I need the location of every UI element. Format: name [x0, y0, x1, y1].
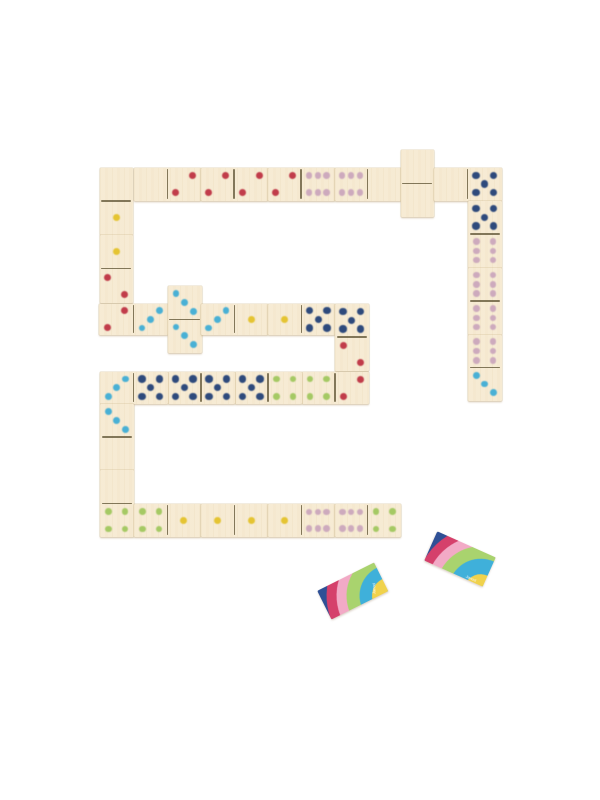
svg-text:Janod: Janod	[371, 583, 376, 594]
